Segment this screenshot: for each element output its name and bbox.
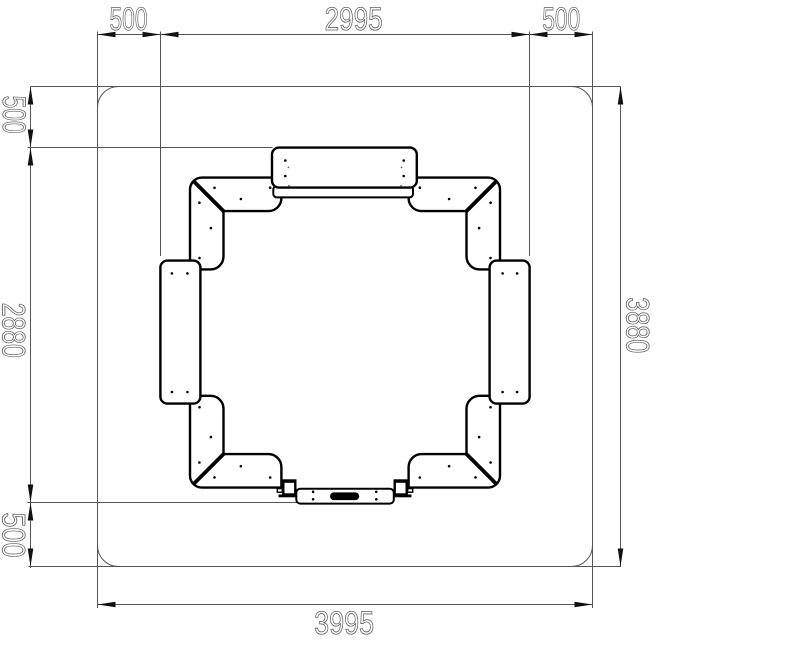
svg-text:500: 500	[0, 96, 32, 134]
svg-text:2880: 2880	[0, 303, 31, 358]
svg-text:3995: 3995	[314, 605, 374, 640]
svg-text:3880: 3880	[619, 297, 655, 353]
svg-text:500: 500	[110, 1, 148, 37]
svg-text:500: 500	[542, 1, 580, 37]
svg-text:2995: 2995	[325, 1, 383, 37]
svg-text:500: 500	[0, 513, 32, 558]
